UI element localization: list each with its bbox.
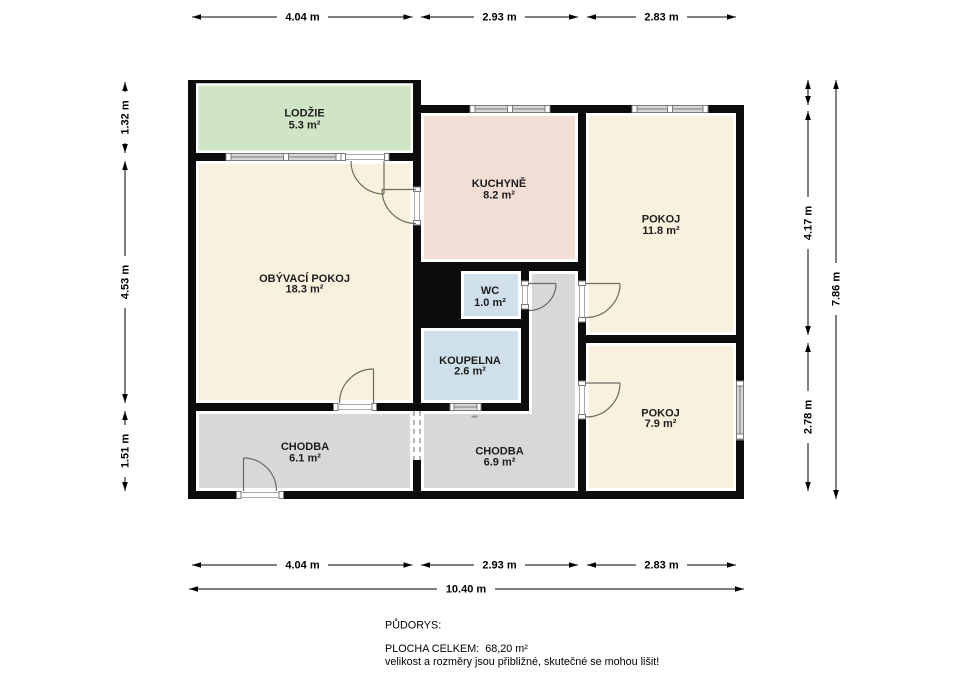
svg-text:WC: WC — [481, 285, 499, 297]
svg-text:11.8 m²: 11.8 m² — [642, 225, 680, 237]
svg-text:1.32 m: 1.32 m — [120, 100, 132, 134]
svg-text:4.04 m: 4.04 m — [285, 560, 319, 572]
svg-text:7.9 m²: 7.9 m² — [645, 418, 677, 430]
svg-text:KUCHYNĚ: KUCHYNĚ — [472, 177, 526, 190]
svg-text:2.78 m: 2.78 m — [803, 400, 815, 434]
svg-text:6.1 m²: 6.1 m² — [289, 453, 321, 465]
svg-text:4.17 m: 4.17 m — [803, 206, 815, 240]
svg-text:PŮDORYS:: PŮDORYS: — [385, 619, 441, 632]
svg-text:2.93 m: 2.93 m — [482, 12, 516, 24]
svg-text:velikost a rozměry jsou přibli: velikost a rozměry jsou přibližné, skute… — [385, 656, 659, 668]
svg-text:2.93 m: 2.93 m — [482, 560, 516, 572]
svg-text:7.86 m: 7.86 m — [831, 272, 843, 306]
svg-text:2.83 m: 2.83 m — [644, 560, 678, 572]
svg-text:18.3 m²: 18.3 m² — [286, 284, 324, 296]
svg-text:5.3 m²: 5.3 m² — [289, 120, 321, 132]
svg-text:4.53 m: 4.53 m — [120, 265, 132, 299]
svg-text:2.83 m: 2.83 m — [644, 12, 678, 24]
svg-text:CHODBA: CHODBA — [281, 441, 329, 453]
svg-text:1.51 m: 1.51 m — [120, 434, 132, 468]
svg-text:8.2 m²: 8.2 m² — [483, 190, 515, 202]
svg-text:1.0 m²: 1.0 m² — [474, 297, 506, 309]
svg-text:PLOCHA CELKEM: 68,20 m²: PLOCHA CELKEM: 68,20 m² — [385, 643, 528, 655]
svg-text:POKOJ: POKOJ — [642, 214, 681, 226]
svg-text:LODŽIE: LODŽIE — [284, 107, 324, 120]
svg-text:2.6 m²: 2.6 m² — [454, 366, 486, 378]
svg-text:10.40 m: 10.40 m — [446, 584, 487, 596]
svg-text:4.04 m: 4.04 m — [285, 12, 319, 24]
svg-text:6.9 m²: 6.9 m² — [484, 457, 516, 469]
